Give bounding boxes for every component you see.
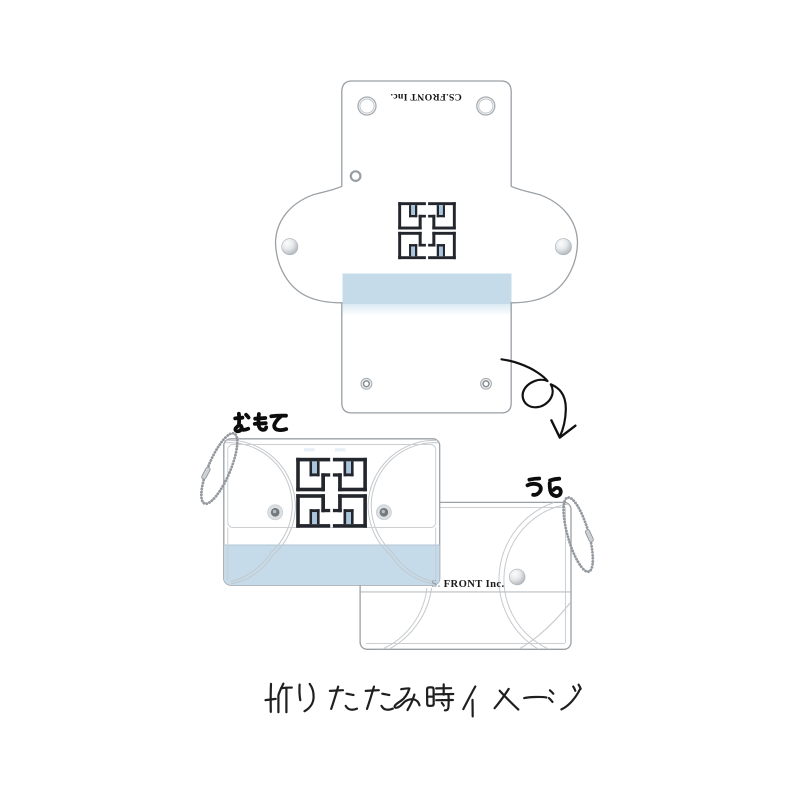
svg-text:CS.FRONT Inc.: CS.FRONT Inc. <box>390 91 462 102</box>
svg-text:S. FRONT Inc.: S. FRONT Inc. <box>431 579 504 590</box>
